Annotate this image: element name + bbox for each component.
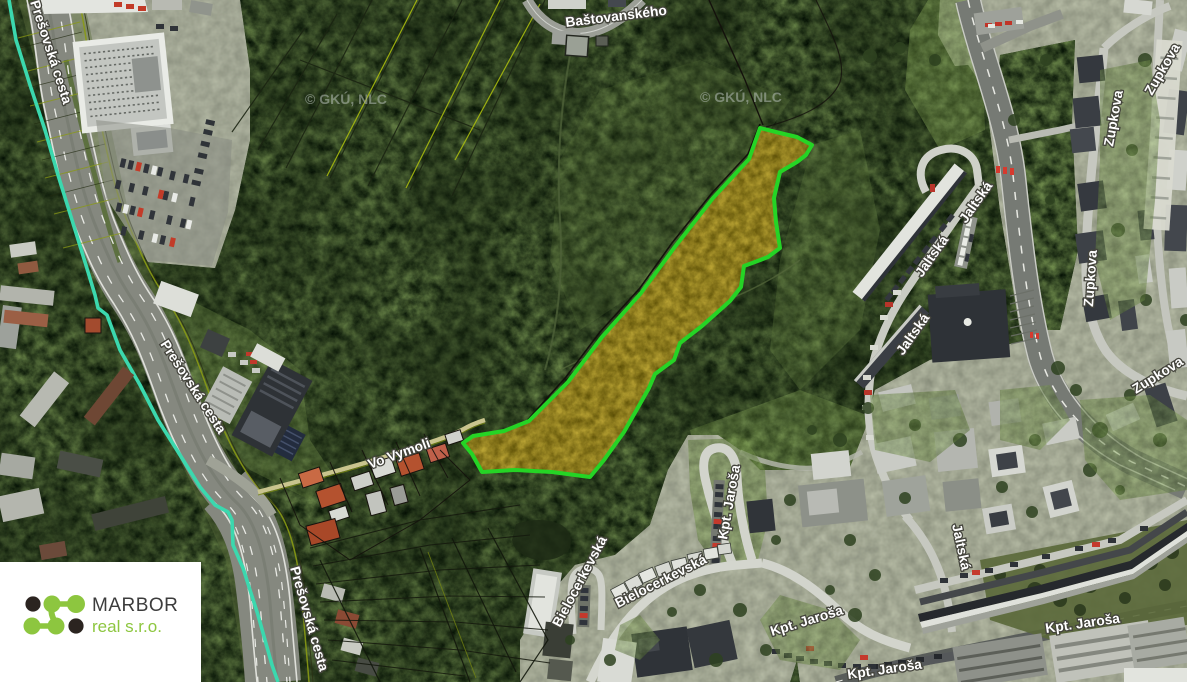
svg-text:MARBOR: MARBOR (92, 595, 178, 616)
svg-text:© GKÚ, NLC: © GKÚ, NLC (700, 88, 782, 105)
svg-text:real s.r.o.: real s.r.o. (92, 617, 162, 636)
svg-text:© GKÚ, NLC: © GKÚ, NLC (305, 90, 387, 107)
